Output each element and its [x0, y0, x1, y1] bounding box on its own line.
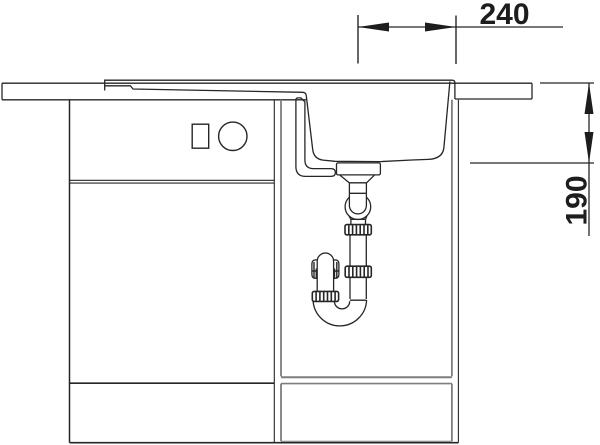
svg-text:240: 240 [479, 0, 529, 31]
svg-text:190: 190 [561, 175, 594, 225]
